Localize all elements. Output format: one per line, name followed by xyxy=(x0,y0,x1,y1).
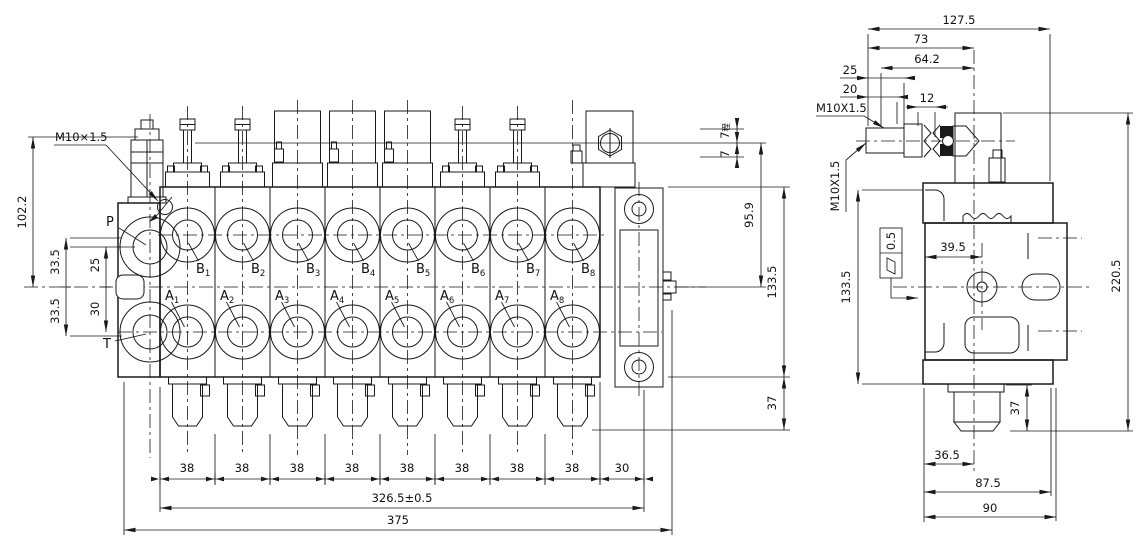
stroke-reference xyxy=(195,129,766,157)
port-a8-label: A8 xyxy=(550,289,564,306)
dim-pitch: 38 xyxy=(345,461,360,475)
dim-center-to-t: 30 xyxy=(88,302,102,317)
port-p-label: P xyxy=(106,215,114,230)
dim-stack-length: 326.5±0.5 xyxy=(372,491,433,505)
port-b5-label: B5 xyxy=(416,262,430,279)
dim-pitch-end: 30 xyxy=(615,461,630,475)
port-b4-label: B4 xyxy=(361,262,375,279)
dim-port-off-bottom: 33.5 xyxy=(48,298,62,324)
dim-side-64-2: 64.2 xyxy=(914,52,940,66)
dim-pitch: 38 xyxy=(180,461,195,475)
dim-pitch: 38 xyxy=(400,461,415,475)
technical-drawing: M10×1.5 102.2 33.5 33.5 25 30 P T 7程 7 9… xyxy=(0,0,1140,557)
port-a6-label: A6 xyxy=(440,289,454,306)
dim-side-25: 25 xyxy=(843,63,858,77)
actuator-housing-side xyxy=(955,113,1001,183)
side-body xyxy=(866,113,1067,431)
dim-side-hole-offset: 39.5 xyxy=(940,240,966,254)
port-a4-label: A4 xyxy=(330,289,344,306)
flatness-value: 0.5 xyxy=(884,232,898,250)
side-view: 0.5 xyxy=(816,13,1133,522)
port-b6-label: B6 xyxy=(471,262,485,279)
end-plate xyxy=(615,188,676,387)
dim-pitch: 38 xyxy=(290,461,305,475)
port-b3-label: B3 xyxy=(306,262,320,279)
dim-side-73: 73 xyxy=(914,32,929,46)
dim-side-thread-left: M10X1.5 xyxy=(828,161,842,212)
port-a2-label: A2 xyxy=(220,289,234,306)
flatness-symbol xyxy=(887,258,895,274)
dim-body-height: 133.5 xyxy=(765,266,779,299)
dim-port-off-top: 33.5 xyxy=(48,249,62,275)
port-a1-label: A1 xyxy=(165,289,179,306)
return-caps xyxy=(169,377,595,426)
port-b8-label: B8 xyxy=(581,262,595,279)
dim-pitch: 38 xyxy=(565,461,580,475)
dim-side-overall-height: 220.5 xyxy=(1109,260,1123,293)
port-a7-label: A7 xyxy=(495,289,509,306)
dim-pitch: 38 xyxy=(510,461,525,475)
clamp-serration xyxy=(963,214,1011,224)
dim-side-20: 20 xyxy=(843,82,858,96)
dim-side-12: 12 xyxy=(920,91,935,105)
port-b7-label: B7 xyxy=(526,262,540,279)
dim-top-to-center: 95.9 xyxy=(742,202,756,228)
port-a3-label: A3 xyxy=(275,289,289,306)
dim-pitch: 38 xyxy=(455,461,470,475)
dim-side-cap-height: 37 xyxy=(1008,401,1022,416)
dim-overall-height: 102.2 xyxy=(15,196,29,229)
dim-pitch: 38 xyxy=(235,461,250,475)
side-pocket xyxy=(965,317,1019,353)
flatness-callout: 0.5 xyxy=(880,228,918,298)
valve-body xyxy=(116,187,600,377)
port-a5-label: A5 xyxy=(385,289,399,306)
port-t-label: T xyxy=(102,337,111,352)
inlet-notch xyxy=(116,275,144,299)
dim-cap-height: 37 xyxy=(765,396,779,411)
cap-section-8 xyxy=(571,111,635,187)
spool-actuators xyxy=(166,111,636,187)
dim-side-90: 90 xyxy=(983,501,998,515)
dim-side-overall-width: 127.5 xyxy=(943,13,976,27)
dim-p-to-center: 25 xyxy=(88,258,102,273)
port-b2-label: B2 xyxy=(251,262,265,279)
side-labels: 127.5 73 64.2 25 20 M10X1.5 12 M10X1.5 1… xyxy=(816,13,1123,515)
dim-side-cap-offset: 36.5 xyxy=(934,448,960,462)
front-view: M10×1.5 102.2 33.5 33.5 25 30 P T 7程 7 9… xyxy=(15,100,790,535)
dim-stroke-down: 7 xyxy=(718,150,732,157)
side-return-cap xyxy=(948,384,1004,431)
dim-thread-label: M10×1.5 xyxy=(55,130,107,144)
dim-side-body-height: 133.5 xyxy=(839,271,853,304)
dim-overall-length: 375 xyxy=(387,513,409,527)
dim-side-thread-top: M10X1.5 xyxy=(816,101,867,115)
front-labels: M10×1.5 102.2 33.5 33.5 25 30 P T 7程 7 9… xyxy=(15,123,779,527)
threaded-adjuster xyxy=(866,124,979,157)
dim-stroke-up: 7程 xyxy=(718,123,732,139)
dim-side-87-5: 87.5 xyxy=(975,476,1001,490)
port-b1-label: B1 xyxy=(196,262,210,279)
